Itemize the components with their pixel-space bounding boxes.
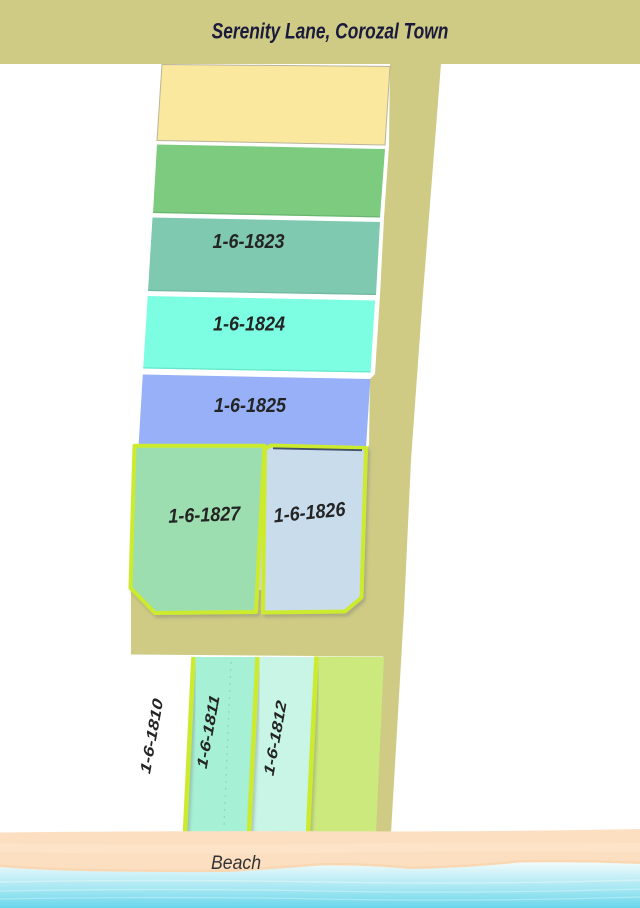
- svg-text:1-6-1827: 1-6-1827: [168, 503, 242, 528]
- svg-text:1-6-1825: 1-6-1825: [214, 395, 286, 417]
- svg-text:Serenity Lane, Corozal Town: Serenity Lane, Corozal Town: [212, 20, 449, 44]
- svg-text:1-6-1824: 1-6-1824: [213, 314, 285, 336]
- svg-text:1-6-1823: 1-6-1823: [212, 231, 284, 253]
- svg-text:Beach: Beach: [211, 851, 261, 873]
